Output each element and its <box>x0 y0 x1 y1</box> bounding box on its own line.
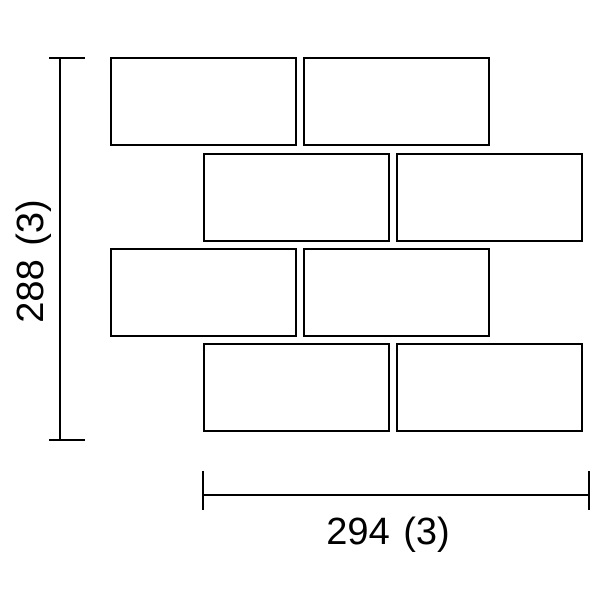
tile <box>303 57 490 146</box>
tile <box>396 153 583 242</box>
dimension-tick <box>202 471 204 510</box>
vertical-dimension-label: 288 (3) <box>12 199 50 322</box>
dimension-line <box>202 494 590 496</box>
tile <box>110 248 297 337</box>
tile <box>303 248 490 337</box>
tile <box>203 153 390 242</box>
dimension-tick <box>588 471 590 510</box>
tile-layout-drawing: 288 (3) 294 (3) <box>0 0 600 600</box>
dimension-tick <box>49 439 85 441</box>
tile <box>396 343 583 432</box>
tile <box>203 343 390 432</box>
dimension-tick <box>49 57 85 59</box>
tile <box>110 57 297 146</box>
horizontal-dimension-label: 294 (3) <box>326 513 449 551</box>
dimension-line <box>59 57 61 441</box>
